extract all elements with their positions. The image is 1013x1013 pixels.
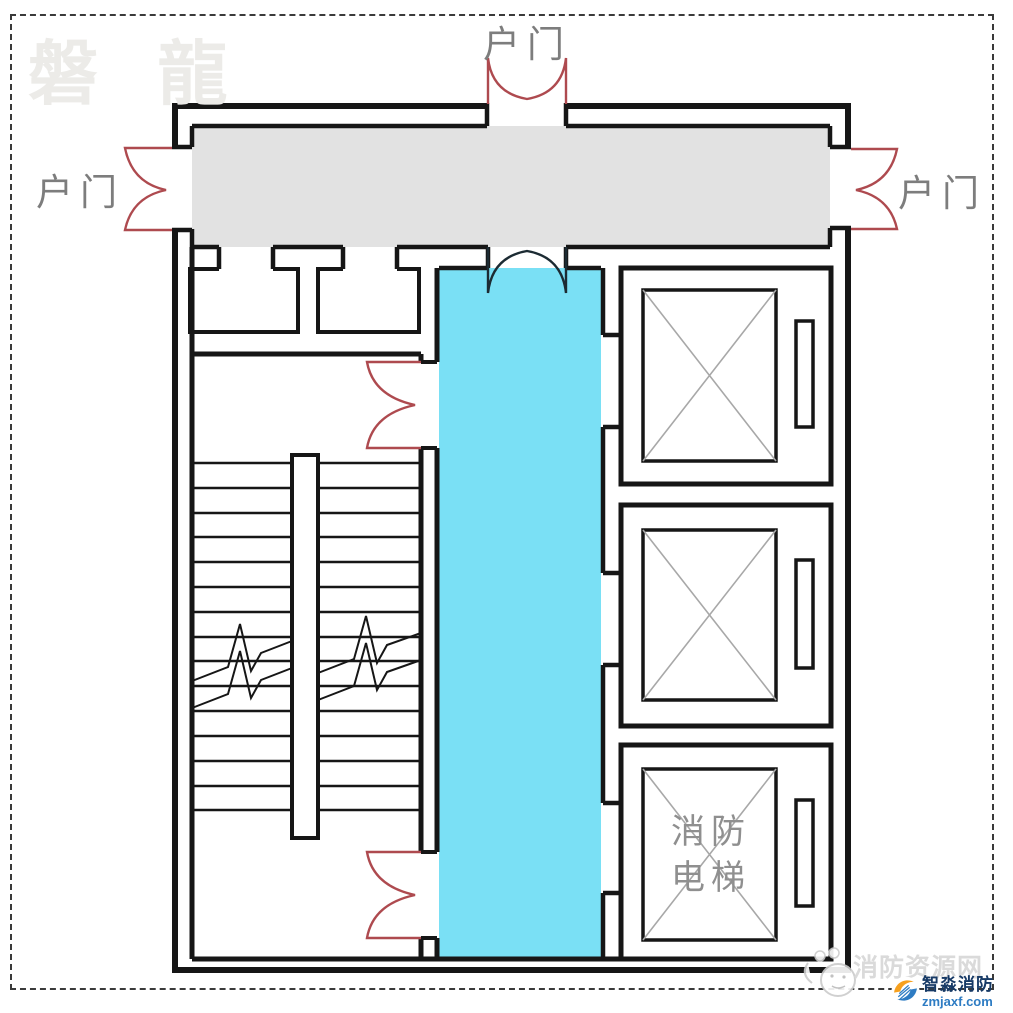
door-right-swing	[851, 149, 897, 229]
stair-stringer	[292, 455, 318, 838]
door-left-swing	[125, 148, 172, 230]
site-logo: 智淼消防 zmjaxf.com	[891, 976, 994, 1008]
front-room-area	[439, 268, 601, 959]
elevator-counterweights	[796, 321, 813, 906]
stair-door-upper-swing	[367, 362, 421, 448]
fire-elevator-label: 消防电梯	[665, 810, 757, 902]
logo-domain: zmjaxf.com	[922, 995, 994, 1008]
corridor-area	[192, 126, 830, 247]
stair-door-lower-swing	[367, 852, 421, 938]
service-shaft-boxes	[190, 269, 419, 332]
floor-plan-drawing	[0, 0, 1013, 1013]
logo-name: 智淼消防	[922, 976, 994, 993]
logo-swirl-icon	[891, 976, 920, 1005]
brand-watermark: 磐 龍	[28, 18, 247, 119]
door-label-left: 户门	[36, 162, 124, 216]
door-label-top: 户门	[483, 14, 571, 68]
door-label-right: 户门	[898, 163, 986, 217]
floor-plan-page: 磐 龍 户门 户门 户门 消防电梯 消防资源网 智淼消防 zmjaxf.com	[0, 0, 1013, 1013]
stair-flights	[192, 455, 421, 838]
